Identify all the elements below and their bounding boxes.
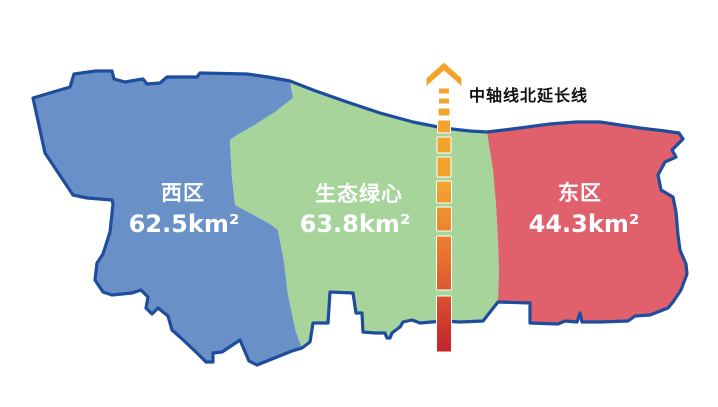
green-heart-region-label: 生态绿心 63.8km² — [300, 182, 411, 238]
west-region-area: 62.5km² — [129, 210, 240, 238]
green-heart-region-area: 63.8km² — [300, 210, 411, 238]
west-region-name: 西区 — [161, 181, 205, 205]
axis-label: 中轴线北延长线 — [469, 86, 588, 105]
east-region-area: 44.3km² — [529, 210, 640, 238]
east-region-name: 东区 — [558, 181, 602, 205]
axis-dashed-line — [437, 88, 452, 352]
up-arrow-icon — [426, 62, 462, 87]
map-canvas: 中轴线北延长线 西区 62.5km² 生态绿心 63.8km² 东区 44.3k… — [0, 0, 718, 407]
green-heart-region-name: 生态绿心 — [315, 182, 403, 206]
district-map: 中轴线北延长线 西区 62.5km² 生态绿心 63.8km² 东区 44.3k… — [0, 0, 718, 407]
